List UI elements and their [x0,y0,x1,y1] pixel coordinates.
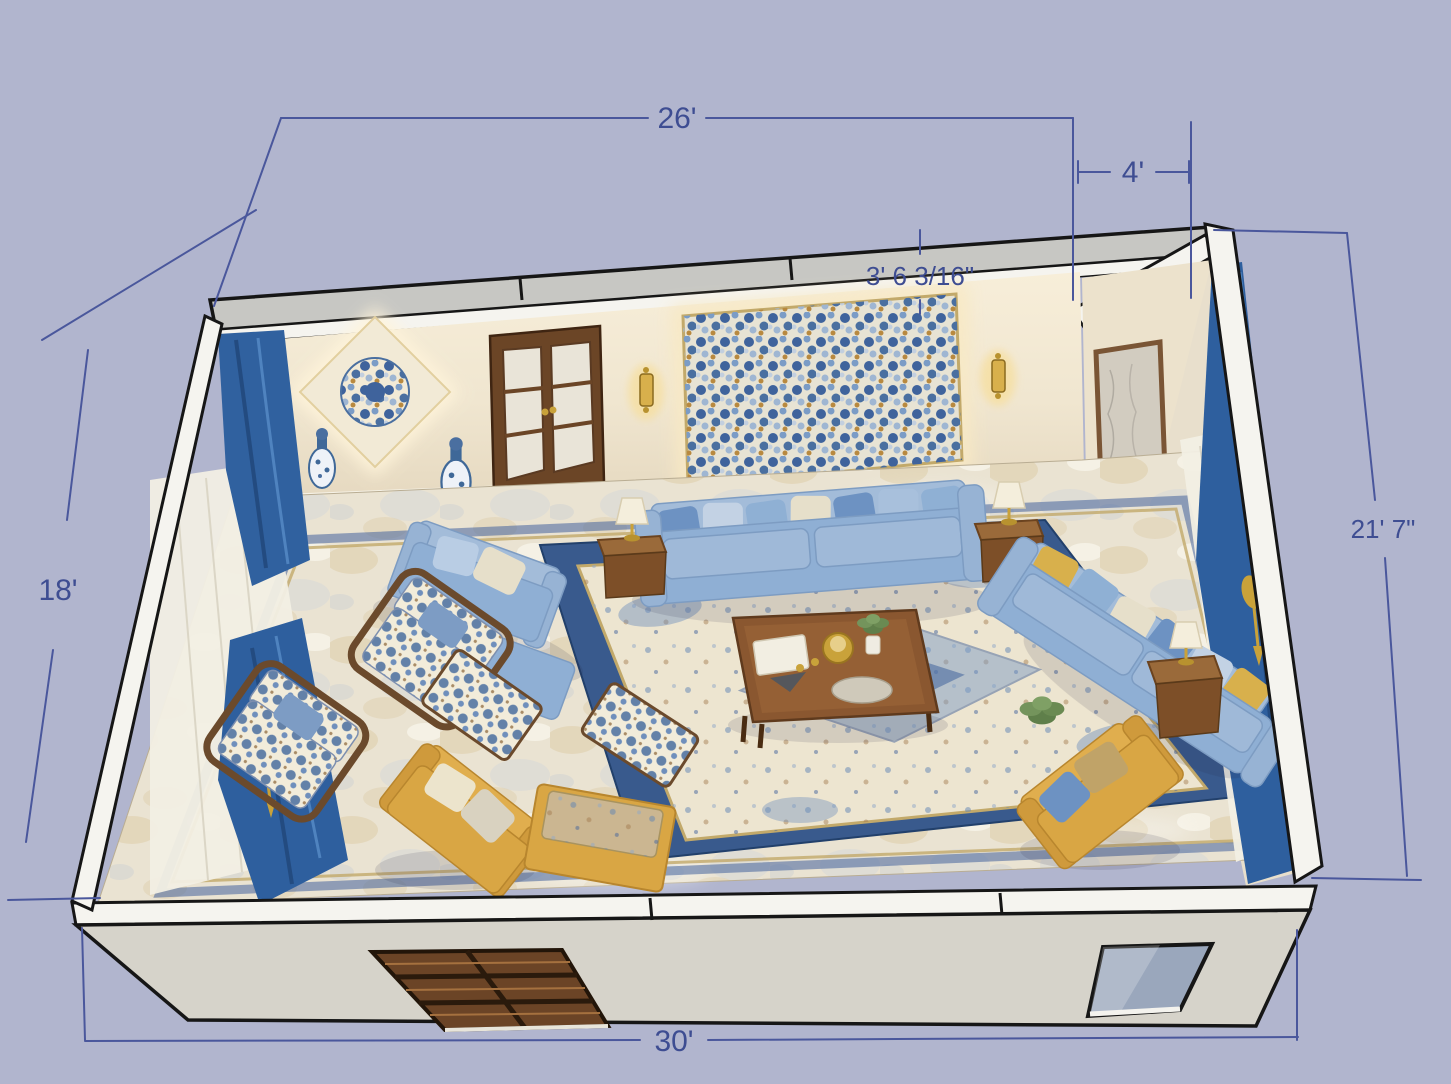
dimension-label-3ft6in: 3' 6 3/16" [866,261,974,291]
wall-sconce-right [980,350,1016,406]
dimension-label-4ft: 4' [1122,156,1144,189]
mosaic-wall-panel [671,284,974,498]
dimension-label-26ft: 26' [657,102,696,135]
double-door [490,326,604,494]
scene-canvas: 26' 4' 3' 6 3/16" 21' 7" 18' 30' [0,0,1451,1084]
dimension-label-30ft: 30' [654,1025,693,1058]
front-wall [72,886,1316,1030]
dimension-label-18ft: 18' [38,574,77,607]
dimension-label-21ft7in: 21' 7" [1351,514,1416,544]
wall-sconce-left [628,364,664,420]
floor-plan-3d-view: 26' 4' 3' 6 3/16" 21' 7" 18' 30' [0,0,1451,1084]
